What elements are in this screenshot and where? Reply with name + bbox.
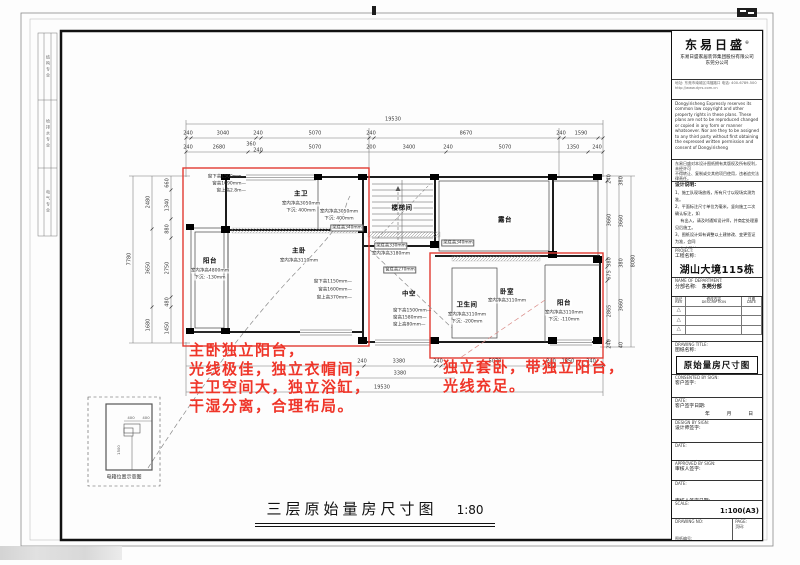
dim-top-total: 19530 (385, 118, 401, 123)
window-note: 窗上高370mm— (317, 296, 352, 301)
tb-drawing-title: DRAWING TITLE: 图纸名称: 原始量房尺寸图 (672, 342, 762, 375)
project-name: 湖山大境115栋02 (675, 261, 759, 278)
dim-label: 3650 (147, 262, 152, 275)
contact-line: 地址: 东莞市南城区鸿福路口 电话: 400-6789-500 (675, 81, 759, 86)
dim-label: 1340 (166, 199, 171, 212)
dim-label: 240 (253, 132, 263, 137)
red-annotation-right: 独立套卧，带独立阳台， 光线充足。 (443, 358, 625, 395)
dept-name: 东莞分部 (702, 284, 722, 290)
drawing-title: 原始量房尺寸图 (676, 356, 758, 374)
rev-row-date (742, 307, 762, 317)
design-note: 3、图纸设计如有调整以土建修改、变更签证为准，会同 (675, 231, 759, 245)
drawing-no-label-en: DRAWING NO: (675, 520, 729, 525)
rev-header-date: 日期DATE (742, 297, 762, 307)
dim-label: 240 (183, 132, 193, 137)
red-line: 光线极佳，独立衣帽间， (189, 360, 371, 379)
sign-label-cn: 设计师签字: (675, 426, 759, 432)
logo-text: 东易日盛 (685, 38, 745, 52)
title-underline-1 (255, 523, 495, 524)
dim-label: 5070 (309, 132, 322, 137)
room-label-bathroom: 卫生间 (456, 302, 479, 309)
dim-label: 240 (592, 146, 602, 151)
room-note: 室内净高3110mm (488, 299, 526, 304)
revision-grid: 标记REV 修改内容DESCRIPTION 日期DATE △ △ △ (672, 297, 762, 335)
red-line: 干湿分离，合理布局。 (189, 397, 371, 416)
project-label-cn: 工程名称: (675, 254, 759, 260)
tb-sign-approver-date: DATE: 审核人签字日期: 年 月 日 (672, 481, 762, 501)
rev-row-date (742, 316, 762, 326)
drawing-sheet: 结构专业 给排水专业 电气专业 19530 240 3040 240 5070 … (0, 0, 800, 565)
dim-label: 675 (608, 270, 613, 280)
dim-label: 240 (608, 174, 613, 184)
dim-label: 2480 (147, 196, 152, 209)
registered-mark: ® (745, 40, 749, 45)
tb-sign-approver: APPROVED BY SIGN: 审核人签字: (672, 461, 762, 481)
tb-scale: SCALE: 比例: 1:100(A3) (672, 501, 762, 519)
dim-label: 1450 (166, 322, 171, 335)
dim-label: 240 (183, 146, 193, 151)
sign-label-cn: 客户签字: (675, 381, 759, 387)
dim-label: 3660 (608, 214, 613, 227)
strip-cell-structure: 结构专业 (39, 33, 57, 100)
tb-sign-client: CONSENTED BY SIGN: 客户签字: (672, 375, 762, 398)
detail-dim: 400 (127, 416, 134, 420)
window-note: 窗下高1500mm— (208, 175, 246, 180)
strip-cell-electrical: 电气专业 (39, 168, 57, 236)
rev-row-mark: △ (672, 316, 686, 326)
dim-label: 880 (166, 224, 171, 234)
detail-dim: 1500 (117, 445, 121, 455)
room-label-balcony-left: 阳台 (202, 258, 218, 265)
dim-label: 660 (166, 178, 171, 188)
red-line: 主卫空间大，独立浴缸， (189, 378, 371, 397)
rev-row-date (742, 326, 762, 336)
beam-note: 窗底高270mm (383, 267, 416, 274)
dept-label-cn: 分部名称: (675, 284, 697, 290)
dim-right-total: 8080 (632, 255, 637, 268)
rev-header-mark: 标记REV (672, 297, 686, 307)
room-label-master-bedroom: 主卧 (291, 248, 307, 255)
dim-left-total: 7780 (128, 253, 133, 266)
sheet-title-block: 三层原始量房尺寸图 1:80 (255, 498, 495, 527)
corner-marks (372, 6, 757, 17)
scale-value: 1:100(A3) (720, 507, 759, 515)
dim-label: 1590 (575, 132, 588, 137)
dim-label: 3040 (217, 132, 230, 137)
room-label-stairwell: 楼梯间 (391, 205, 414, 212)
tb-copyright-cn: 东易日盛对本设计图纸拥有其版权及所有权利，未经许可 不得转让、复制或交其他项目使… (672, 160, 762, 182)
room-note: 下沉: 400mm (286, 209, 315, 214)
dim-label: 3400 (403, 146, 416, 151)
room-label-bedroom: 卧室 (499, 289, 515, 296)
dim-label: 380 (608, 257, 613, 267)
dim-label: 3380 (393, 360, 406, 365)
dim-label: 2865 (608, 305, 613, 318)
dim-label: 380 (620, 176, 625, 186)
window-note: 窗高1600mm— (318, 288, 352, 293)
room-note: 室内净高3050mm (320, 210, 358, 215)
room-note: 下沉: -200mm (452, 320, 483, 325)
sign-label-en: DATE: (675, 482, 759, 487)
page-cell: PAGE: 页码: (733, 519, 762, 540)
drawing-no-label-cn: 图纸编号: (675, 536, 692, 540)
title-underline-2 (255, 526, 495, 527)
room-note: 室内净高3110mm (448, 313, 486, 318)
room-label-balcony-right: 阳台 (556, 300, 572, 307)
copyright-chinese: 东易日盛对本设计图纸拥有其版权及所有权利，未经许可 (675, 161, 759, 171)
room-note: 下沉: 400mm (324, 217, 353, 222)
title-block: 东易日盛® 东易日盛家居装饰集团股份有限公司 东莞分公司 地址: 东莞市南城区鸿… (671, 31, 762, 540)
watermark-smudge (0, 546, 122, 560)
red-line: 主卧独立阳台， (189, 341, 371, 360)
dim-label: 3660 (620, 215, 625, 228)
window-note: 窗下高1500mm— (393, 309, 431, 314)
room-note: 下沉: -110mm (549, 318, 580, 323)
dim-bottom-total: 19530 (374, 386, 390, 391)
room-label-master-bath: 主卫 (293, 191, 309, 198)
red-line: 独立套卧，带独立阳台， (443, 358, 625, 377)
strip-cell-plumbing: 给排水专业 (39, 100, 57, 168)
design-note: 2、平面标注尺寸单位为毫米，竖向施工二次确认标注，如 (675, 203, 759, 217)
room-note: 下沉: -130mm (195, 276, 226, 281)
tb-sign-designer-date: DATE: 设计师签字日期: 年 月 日 (672, 443, 762, 461)
dim-label: 200 (366, 146, 376, 151)
tb-copyright-en: Dongyirisheng Expressly reserves its com… (672, 100, 762, 160)
company-logo: 东易日盛® (675, 36, 759, 53)
date-placeholder: 年 月 日 (675, 410, 759, 417)
room-note: 室内净高3050mm (282, 202, 320, 207)
dim-label: 2680 (213, 146, 226, 151)
dim-label: 1680 (147, 319, 152, 332)
copyright-english: Dongyirisheng Expressly reserves its com… (675, 101, 759, 150)
beam-note-sub: 室内净高3180mm (372, 252, 410, 257)
tb-contact-section: 地址: 东莞市南城区鸿福路口 电话: 400-6789-500 http://w… (672, 80, 762, 100)
dim-label: 480 (166, 297, 171, 307)
dim-label: 3660 (620, 299, 625, 312)
window-note: 窗下高1150mm— (314, 280, 352, 285)
dim-label: 5070 (499, 146, 512, 151)
tb-design-notes: 设计说明: 1、施工队现场放线，所有尺寸以现场实测为准。 2、平面标注尺寸单位为… (672, 182, 762, 248)
tb-revision-table: 标记REV 修改内容DESCRIPTION 日期DATE △ △ △ (672, 297, 762, 342)
sign-label-en: DATE: (675, 444, 759, 449)
tb-sign-designer: DESIGN BY SIGN: 设计师签字: (672, 420, 762, 443)
window-note: 窗上高2.8m— (216, 189, 246, 194)
room-note: 室内净高3110mm (280, 259, 318, 264)
page-label-cn: 页码: (735, 525, 760, 530)
dim-label: 40 (620, 342, 625, 348)
rev-header-desc: 修改内容DESCRIPTION (686, 297, 742, 307)
window-note: 窗高1090mm— (212, 182, 246, 187)
dept-line: 分部名称: 东莞分部 (675, 284, 759, 290)
room-note: 室内净高3110mm (545, 311, 583, 316)
design-note: 1、施工队现场放线，所有尺寸以现场实测为准。 (675, 189, 759, 203)
tb-project: PROJECT: 工程名称: 湖山大境115栋02 (672, 248, 762, 278)
dim-label: 240 (443, 146, 453, 151)
dim-label: 1350 (567, 146, 580, 151)
window-note: 窗上高80mm— (393, 323, 426, 328)
dim-label: 5070 (309, 146, 322, 151)
dim-label: 3380 (394, 372, 407, 377)
rev-row-desc (686, 316, 742, 326)
dim-label: 240 (608, 339, 613, 349)
drawing-title-label-cn: 图纸名称: (675, 348, 759, 354)
window-note: 窗高1580mm— (393, 316, 427, 321)
electric-box-caption: 电箱位置示意图 (106, 476, 141, 481)
electric-box-detail (88, 397, 160, 486)
branch-name: 东莞分公司 (675, 61, 759, 67)
tb-drawing-no: DRAWING NO: 图纸编号: YP-01 PAGE: 页码: (672, 519, 762, 540)
sheet-borders (21, 13, 773, 546)
contact-line: http://www.dyrs.com.cn (675, 86, 759, 91)
room-label-terrace: 露台 (497, 217, 513, 224)
dim-label: 240 (253, 149, 263, 154)
dim-label: 240 (556, 132, 566, 137)
design-note: 有出入，请及时通知设计师，并商定处理意见后施工。 (675, 217, 759, 231)
tb-department: NAME OF DEPARTMENT: 分部名称: 东莞分部 (672, 278, 762, 297)
tb-logo-section: 东易日盛® 东易日盛家居装饰集团股份有限公司 东莞分公司 (672, 31, 762, 80)
rev-row-mark: △ (672, 307, 686, 317)
red-line: 光线充足。 (443, 377, 625, 396)
room-note: 室内净高4800mm (191, 269, 229, 274)
red-annotation-left: 主卧独立阳台， 光线极佳，独立衣帽间， 主卫空间大，独立浴缸， 干湿分离，合理布… (189, 341, 371, 415)
sheet-title: 三层原始量房尺寸图 (266, 500, 437, 518)
dim-label: 380 (620, 258, 625, 268)
room-label-void: 中空 (401, 291, 417, 298)
dim-label: 240 (433, 360, 443, 365)
beam-note: 梁底高330mm (374, 243, 407, 250)
rev-row-desc (686, 326, 742, 336)
beam-note: 梁底高340mm (441, 240, 474, 247)
sheet-scale: 1:80 (457, 503, 484, 517)
detail-dim: 400 (142, 416, 149, 420)
drawing-no-cell: DRAWING NO: 图纸编号: YP-01 (672, 519, 733, 540)
copyright-chinese: 不得转让、复制或交其他项目使用，违者追究法律责任。 (675, 171, 759, 181)
sign-label-cn: 审核人签字: (675, 467, 759, 473)
dim-label: 2750 (166, 262, 171, 275)
tb-sign-client-date: DATE: 客户签字日期: 年 月 日 (672, 398, 762, 420)
dim-label: 240 (366, 132, 376, 137)
rev-row-mark: △ (672, 326, 686, 336)
beam-note: 梁底高340mm (330, 225, 363, 232)
rev-row-desc (686, 307, 742, 317)
dim-label: 8670 (460, 132, 473, 137)
